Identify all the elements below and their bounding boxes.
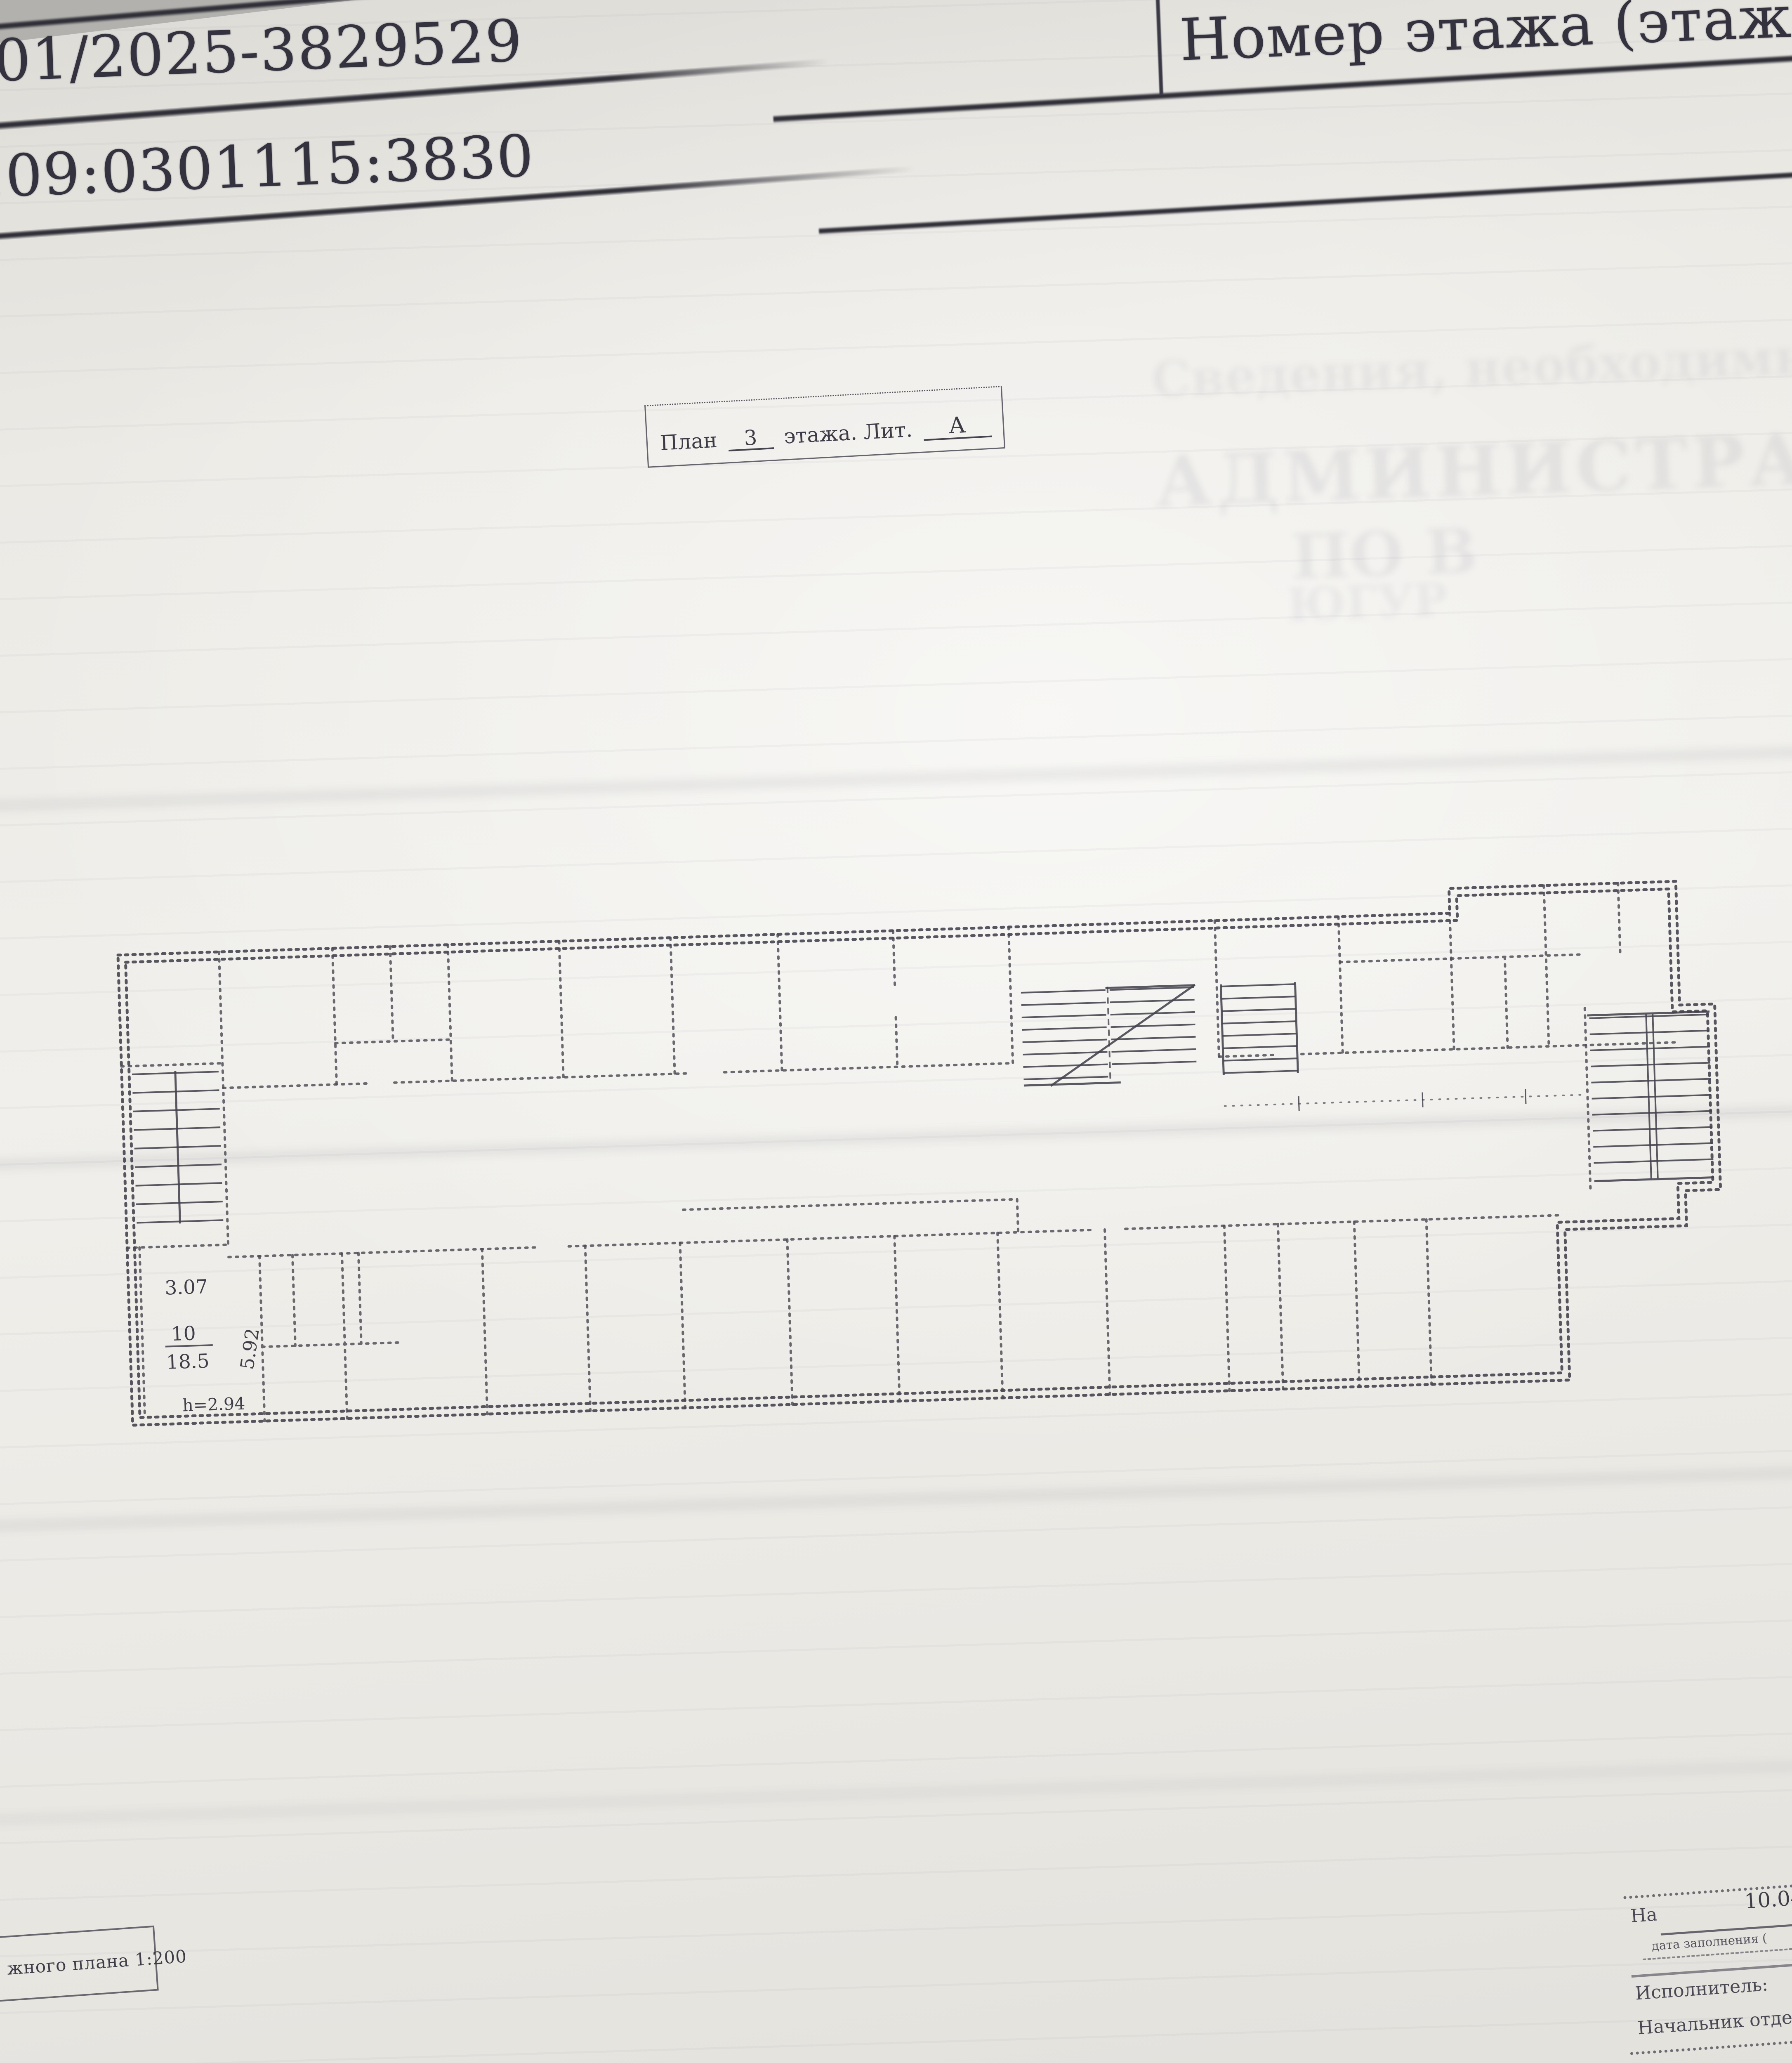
form-na-label: На — [1630, 1904, 1658, 1926]
dimension-5-92-vertical: 5.92 — [236, 1327, 264, 1371]
stair-treads-right — [1221, 984, 1298, 1073]
interior-walls — [117, 881, 1687, 1425]
plan-title-label2: этажа. Лит. — [783, 418, 913, 448]
mid-zone-walls — [683, 1199, 1018, 1243]
top-band-partitions — [332, 883, 1623, 1084]
outer-wall-inner — [125, 888, 1719, 1418]
table-border-line — [819, 161, 1792, 235]
plan-title-label: План — [659, 428, 717, 455]
measure-line — [1225, 1095, 1584, 1106]
stair-treads — [1589, 1015, 1713, 1163]
stair-enclosure — [1585, 1008, 1591, 1190]
stair-center-divider — [1108, 987, 1111, 1081]
plan-annotations: 3.07 10 18.5 5.92 h=2.94 — [163, 1274, 266, 1416]
bleedthrough-text: ЮГУР — [1286, 573, 1449, 632]
table-cell-divider — [1153, 0, 1163, 95]
floor-plan-drawing: 3.07 10 18.5 5.92 h=2.94 — [74, 825, 1768, 1505]
measure-ticks — [1299, 1089, 1526, 1111]
room-number-10: 10 — [171, 1322, 196, 1345]
footer-form: На 10.04 дата заполнения ( Исполнитель: … — [1623, 1873, 1792, 2063]
liter-blank: А — [922, 412, 992, 441]
form-department-head-label: Начальник отдела: — [1637, 2005, 1792, 2039]
left-staircase — [132, 1069, 224, 1225]
cadastral-number: :09:0301115:3830 — [0, 123, 535, 211]
photographed-document-page: Сведения, необходимые АДМИНИСТРАТИВН ПО … — [0, 0, 1792, 2063]
form-date-value: 10.04 — [1744, 1886, 1792, 1914]
dimension-3-07: 3.07 — [164, 1275, 208, 1299]
right-staircase — [1585, 1004, 1715, 1190]
stair-treads-mid — [1110, 987, 1197, 1064]
right-section-walls — [1340, 954, 1586, 1053]
topleft-room-walls — [332, 945, 451, 1043]
corridor-top-wall — [223, 1042, 1676, 1088]
ceiling-height-note: h=2.94 — [182, 1394, 245, 1416]
room-area-18-5: 18.5 — [166, 1350, 210, 1374]
central-staircase — [1021, 981, 1298, 1087]
floor-number-blank: 3 — [727, 426, 774, 451]
form-executor-label: Исполнитель: — [1634, 1974, 1768, 2004]
left-annex-inner-wall — [139, 1247, 145, 1417]
stair-treads-left — [1021, 990, 1108, 1079]
